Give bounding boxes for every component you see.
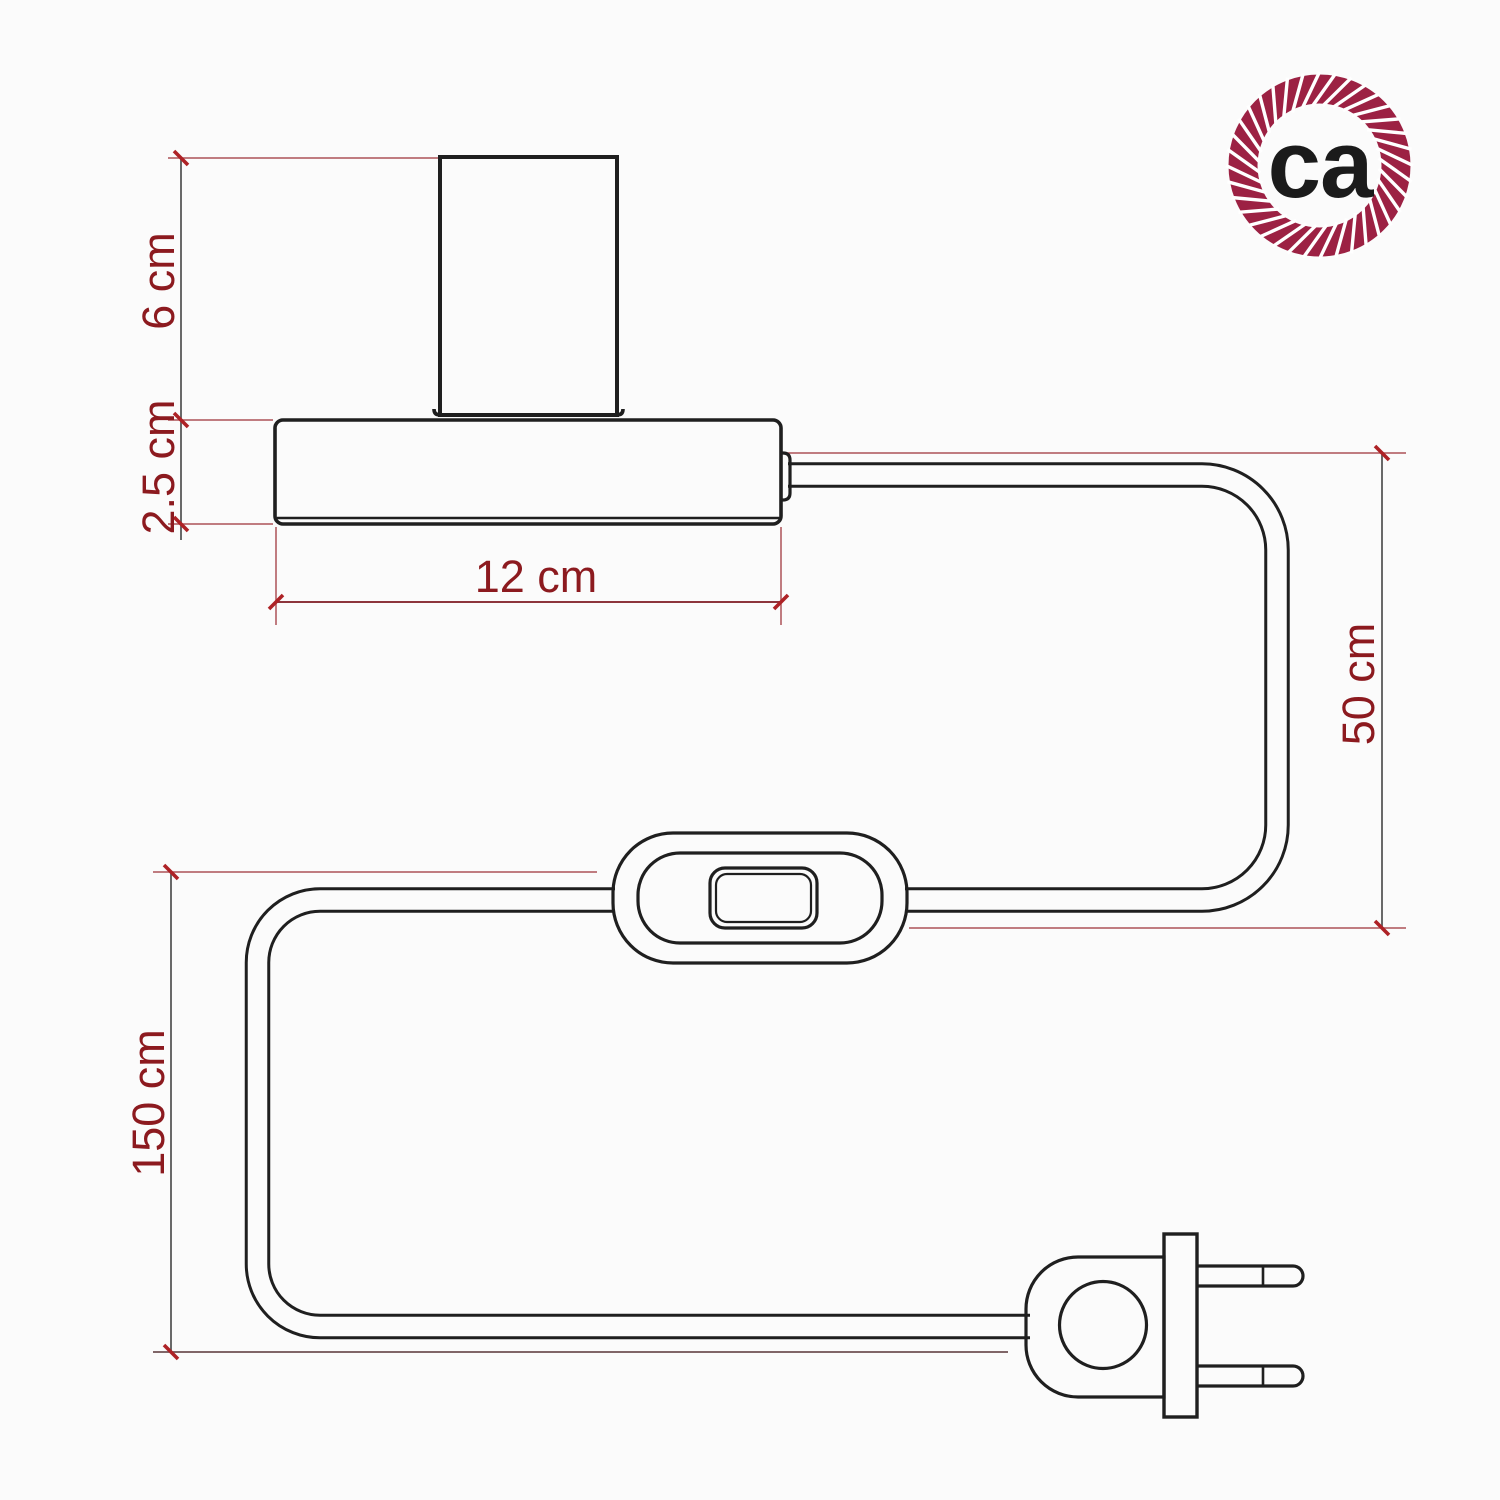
svg-text:ca: ca <box>1268 111 1374 218</box>
svg-text:2.5 cm: 2.5 cm <box>133 399 184 534</box>
svg-text:150 cm: 150 cm <box>123 1029 174 1177</box>
svg-text:12 cm: 12 cm <box>475 551 598 602</box>
svg-text:50 cm: 50 cm <box>1333 623 1384 746</box>
svg-text:6 cm: 6 cm <box>133 232 184 330</box>
